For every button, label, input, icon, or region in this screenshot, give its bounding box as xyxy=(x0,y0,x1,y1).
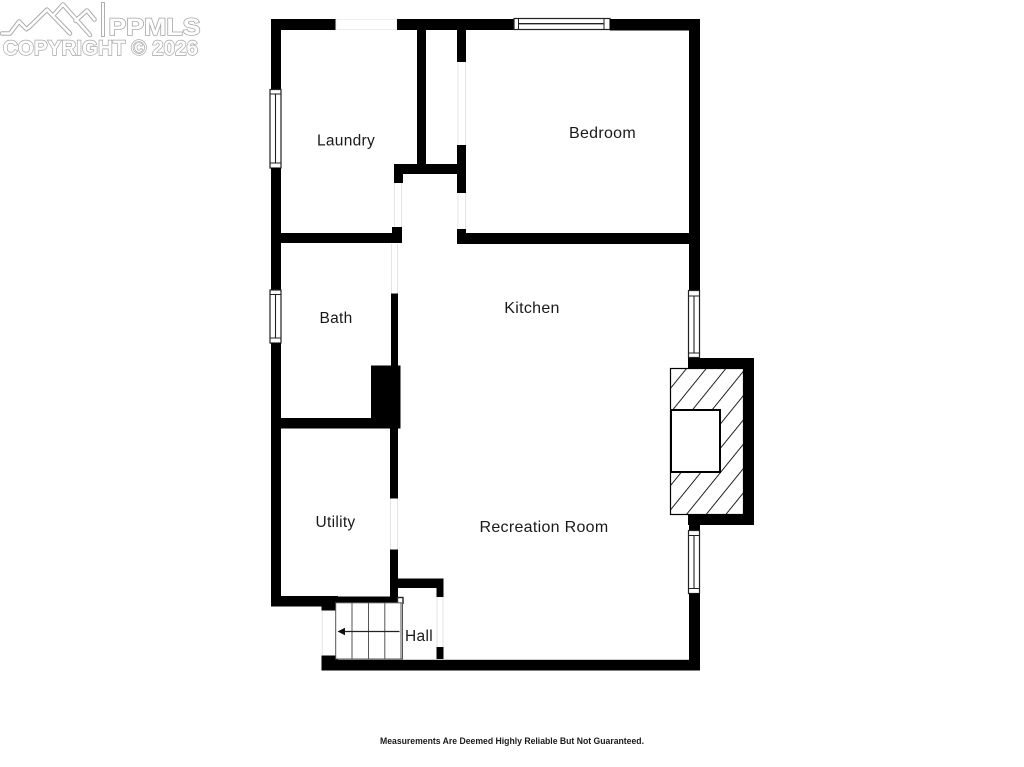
svg-text:Hall: Hall xyxy=(405,628,433,645)
svg-text:Laundry: Laundry xyxy=(317,133,375,150)
svg-text:Bedroom: Bedroom xyxy=(569,125,636,142)
svg-text:Utility: Utility xyxy=(316,514,356,531)
svg-text:Bath: Bath xyxy=(319,310,352,327)
svg-text:COPYRIGHT © 2026: COPYRIGHT © 2026 xyxy=(3,37,198,60)
svg-text:Kitchen: Kitchen xyxy=(504,300,559,317)
svg-text:Recreation Room: Recreation Room xyxy=(480,519,609,536)
svg-text:Measurements Are Deemed Highly: Measurements Are Deemed Highly Reliable … xyxy=(380,736,644,747)
